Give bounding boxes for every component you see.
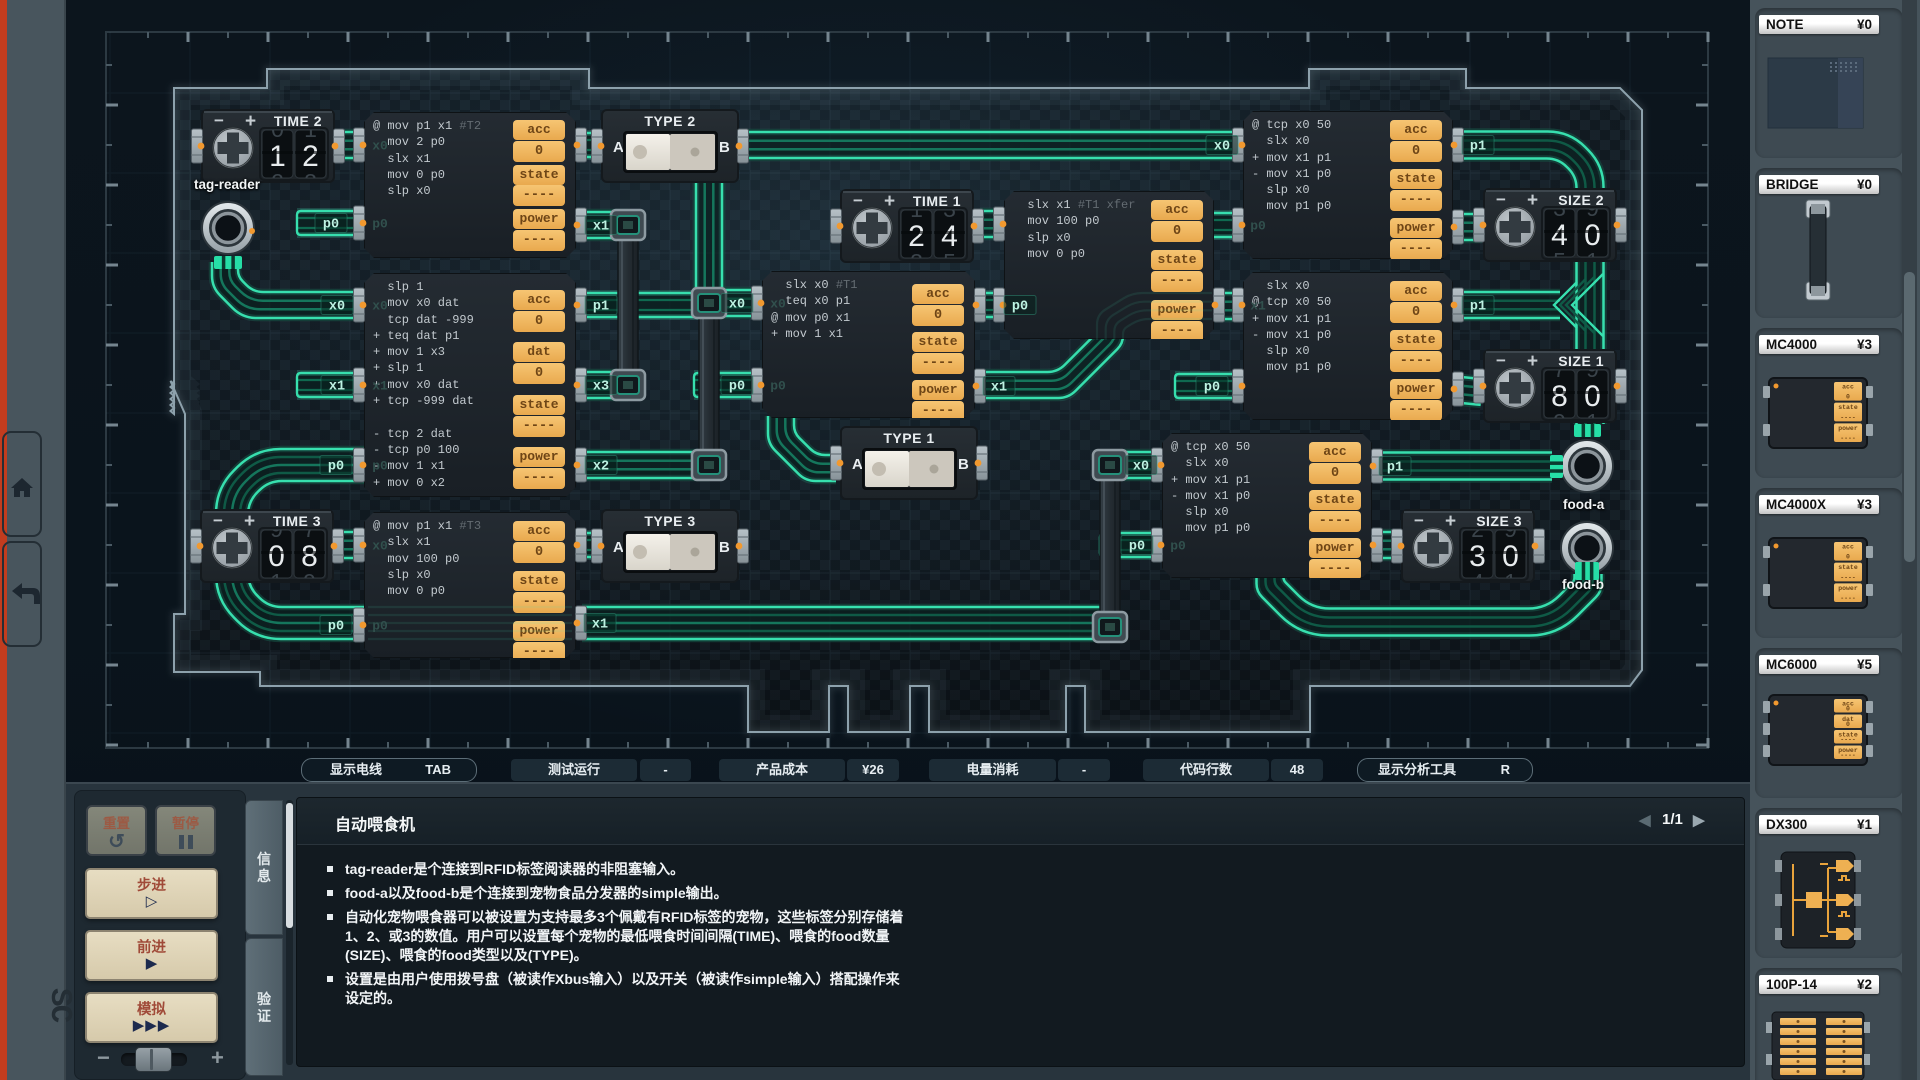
- svg-text:----: ----: [1840, 435, 1856, 442]
- svg-text:state: state: [1838, 564, 1858, 571]
- svg-text:acc: acc: [1842, 544, 1854, 551]
- svg-text:0: 0: [1846, 554, 1850, 561]
- svg-text:0: 0: [1846, 394, 1850, 401]
- svg-text:power: power: [1838, 585, 1858, 592]
- svg-text:----: ----: [1840, 574, 1856, 581]
- svg-text:----: ----: [1840, 595, 1856, 602]
- svg-text:0: 0: [1846, 706, 1850, 713]
- svg-text:0: 0: [1846, 721, 1850, 728]
- svg-text:state: state: [1838, 404, 1858, 411]
- svg-text:power: power: [1838, 425, 1858, 432]
- svg-text:----: ----: [1840, 414, 1856, 421]
- svg-text:----: ----: [1840, 752, 1856, 759]
- svg-text:----: ----: [1840, 737, 1856, 744]
- svg-text:acc: acc: [1842, 384, 1854, 391]
